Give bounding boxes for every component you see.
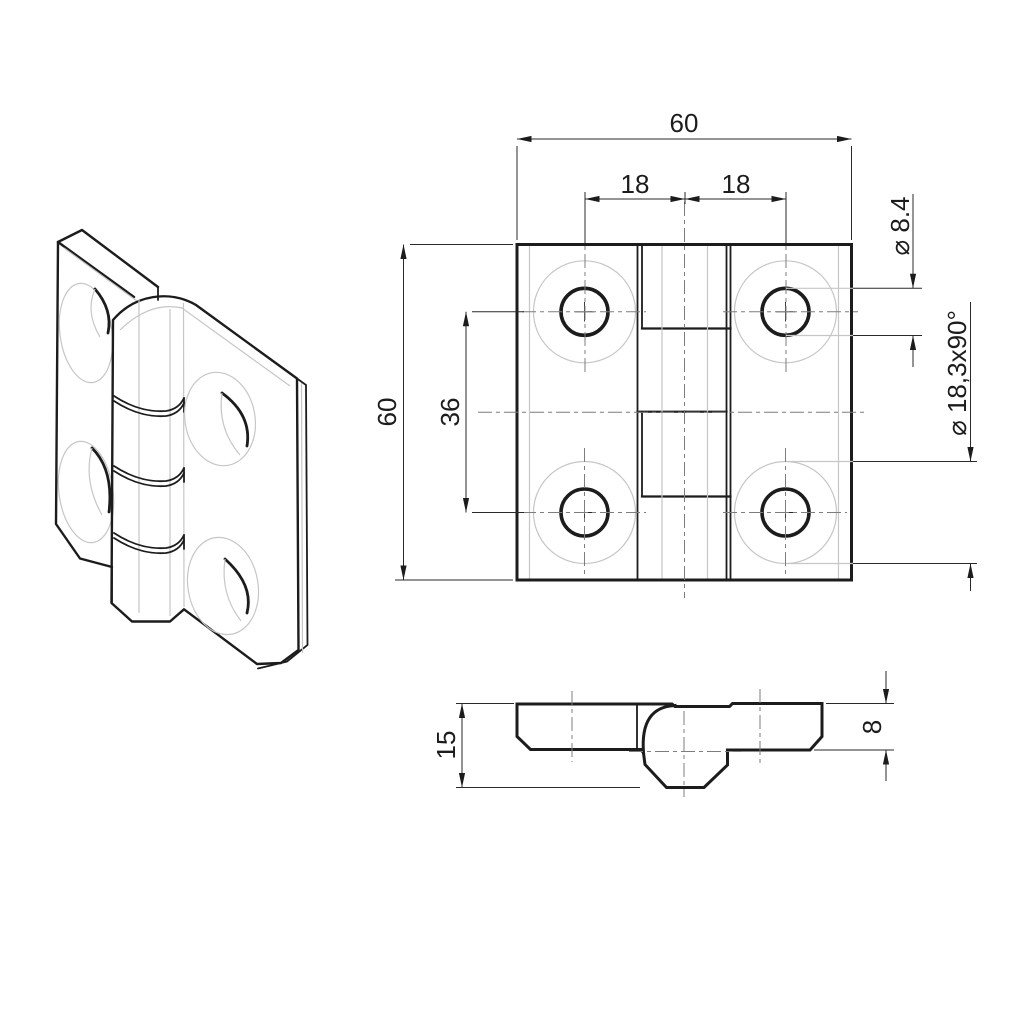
technical-drawing-page: 60 18 18 60 36 (0, 0, 1024, 1024)
dimension-total-thickness-label: 15 (431, 731, 461, 760)
knuckle-curl (643, 706, 675, 753)
hole-back-lower (92, 448, 110, 512)
dimension-countersink: ⌀ 18,3x90° (786, 302, 977, 591)
side-view: 15 8 (431, 671, 894, 797)
dimension-overall-width-label: 60 (670, 108, 699, 138)
isometric-view (52, 230, 307, 669)
dimension-total-thickness: 15 (431, 704, 640, 788)
dimension-leaf-thickness: 8 (814, 671, 894, 781)
hole-front-lower (225, 559, 248, 613)
hole-front-upper (222, 393, 248, 446)
dimension-countersink-label: ⌀ 18,3x90° (942, 310, 972, 436)
counterbore-front-upper (177, 367, 262, 472)
dimension-hole-diameter-label: ⌀ 8.4 (885, 196, 915, 255)
front-leaf (112, 296, 308, 668)
side-outline (517, 704, 822, 788)
centerlines (478, 202, 868, 598)
dimension-hole-offset-left-label: 18 (621, 169, 650, 199)
counterbore-front-lower (180, 532, 266, 641)
knuckle-seams (114, 396, 184, 553)
dimension-hole-spacing-label: 36 (435, 398, 465, 427)
front-view: 60 18 18 60 36 (372, 108, 977, 598)
dimension-leaf-thickness-label: 8 (857, 720, 887, 734)
dimension-overall-height-label: 60 (372, 398, 402, 427)
dimension-hole-offsets: 18 18 (585, 169, 786, 243)
dimension-hole-diameter: ⌀ 8.4 (786, 194, 922, 367)
dimension-hole-offset-right-label: 18 (722, 169, 751, 199)
drawing-canvas: 60 18 18 60 36 (0, 0, 1024, 1024)
hole-back-upper (95, 289, 109, 333)
